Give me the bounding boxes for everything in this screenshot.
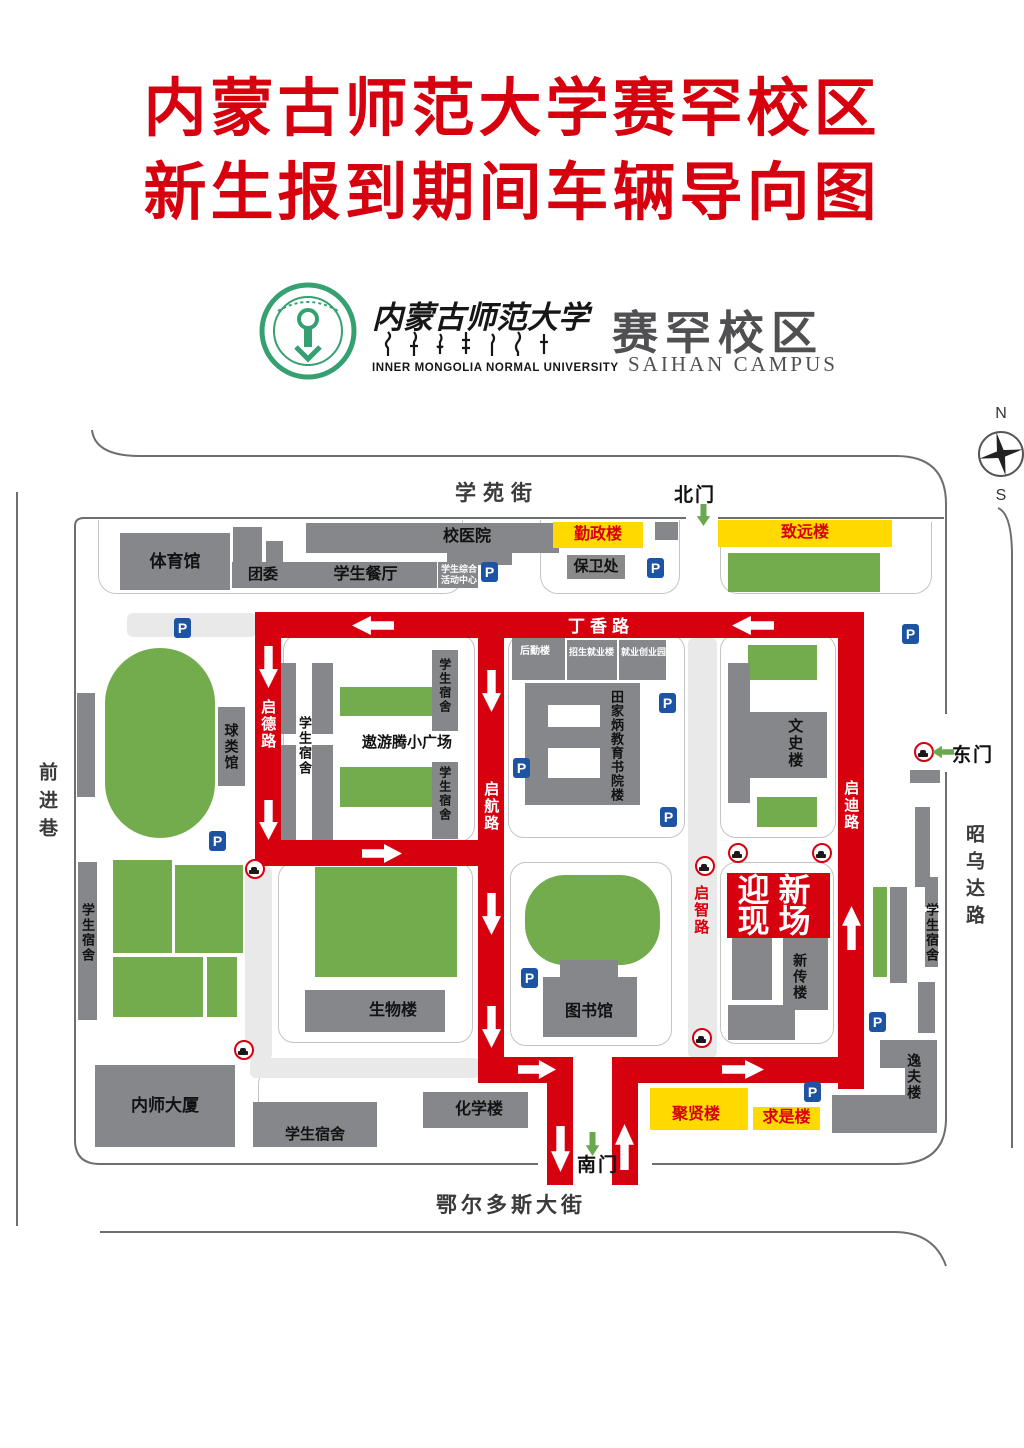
no-entry-icon <box>728 843 748 863</box>
building-yifu-label: 逸夫楼 <box>906 1053 922 1101</box>
lawn <box>175 865 243 953</box>
building-campus-hospital <box>306 523 559 553</box>
building-courtyard <box>548 705 600 727</box>
building-neishi-tower: 内师大厦 <box>95 1065 235 1147</box>
lawn <box>315 867 457 977</box>
building-xinchuan-wing <box>728 1005 795 1040</box>
parking-icon: P <box>869 1012 886 1032</box>
svg-text:N: N <box>995 405 1007 422</box>
building-dormitory-west-label: 学生宿舍 <box>79 903 94 963</box>
svg-text:S: S <box>996 487 1007 504</box>
lawn <box>873 887 887 977</box>
building-wenshi-label: 文史楼 <box>786 718 803 769</box>
building-block <box>233 527 262 563</box>
building-dormitory-east-label: 学生宿舍 <box>923 903 938 963</box>
lawn <box>113 957 203 1017</box>
street-south-label: 鄂尔多斯大街 <box>436 1189 586 1219</box>
parking-icon: P <box>481 562 498 582</box>
building-campus-hospital-label: 校医院 <box>443 528 491 546</box>
building-zhiyuan: 致远楼 <box>718 520 892 547</box>
building-security-office: 保卫处 <box>567 555 625 579</box>
building-xinchuan-wing <box>732 938 772 1000</box>
gate-north-label: 北门 <box>674 480 716 507</box>
building-courtyard <box>548 748 600 778</box>
building-block <box>77 693 95 797</box>
building-juxian: 聚贤楼 <box>650 1088 748 1130</box>
lawn <box>340 687 432 716</box>
building-qinzheng: 勤政楼 <box>553 522 643 548</box>
parking-icon: P <box>647 558 664 578</box>
street-east-label: 昭乌达路 <box>960 824 987 932</box>
building-block <box>918 982 935 1033</box>
parking-icon: P <box>804 1082 821 1102</box>
stadium-field <box>105 648 215 838</box>
road-qizhi <box>688 638 717 1058</box>
compass-icon: N S <box>968 402 1024 504</box>
parking-icon: P <box>513 758 530 778</box>
path-southwest-vertical <box>245 866 272 1060</box>
plaza-label: 遨游腾小广场 <box>362 734 452 751</box>
lawn <box>207 957 237 1017</box>
building-dorm-slab <box>312 745 333 843</box>
street-west-label: 前进巷 <box>33 762 60 846</box>
road-dingxiang-label: 丁香路 <box>568 617 634 637</box>
building-dorm-slab <box>312 663 333 734</box>
parking-icon: P <box>660 807 677 827</box>
building-youth-league: 团委 <box>232 562 294 588</box>
no-entry-icon <box>695 856 715 876</box>
parking-icon: P <box>209 831 226 851</box>
road-qizhi-label: 启智路 <box>692 885 709 936</box>
building-tianjiabing-label: 田家炳教育书院楼 <box>608 690 623 802</box>
lawn <box>757 797 817 827</box>
welcome-site-banner: 迎新 现场 <box>727 873 830 938</box>
building-block <box>266 541 283 563</box>
no-entry-icon <box>234 1040 254 1060</box>
no-entry-icon <box>692 1028 712 1048</box>
building-library: 图书馆 <box>543 977 637 1037</box>
lawn <box>340 767 432 807</box>
street-north-label: 学苑街 <box>455 477 539 507</box>
dorm-label: 学生宿舍 <box>437 766 451 822</box>
path-dingxiang-west <box>127 613 257 637</box>
building-student-canteen: 学生餐厅 <box>294 562 437 588</box>
library-lawn <box>525 875 660 965</box>
road-qide-label: 启德路 <box>259 699 276 750</box>
building-qiushi: 求是楼 <box>753 1107 820 1130</box>
no-entry-icon <box>245 859 265 879</box>
building-biology: 生物楼 <box>305 990 445 1032</box>
building-dormitory-south: 学生宿舍 <box>253 1102 377 1147</box>
building-block <box>890 887 907 983</box>
parking-icon: P <box>174 618 191 638</box>
gate-east-label: 东门 <box>952 740 994 767</box>
building-career-park: 就业创业园 <box>619 640 666 680</box>
building-block <box>915 807 930 887</box>
building-admissions: 招生就业楼 <box>567 640 617 680</box>
building-gymnasium: 体育馆 <box>120 533 230 590</box>
building-xinchuan-label: 新传楼 <box>792 953 808 1001</box>
building-logistics: 后勤楼 <box>512 638 565 680</box>
building-student-activity-center: 学生综合 活动中心 <box>438 562 478 588</box>
poster: 内蒙古师范大学赛罕校区 新生报到期间车辆导向图 内蒙古师范大学 INNER MO… <box>0 0 1024 1448</box>
path-southwest-horizontal <box>250 1058 480 1078</box>
dorm-quad-label: 学生宿舍 <box>296 715 311 777</box>
parking-icon: P <box>659 693 676 713</box>
no-entry-icon <box>914 742 934 762</box>
lawn <box>748 645 817 680</box>
parking-icon: P <box>521 968 538 988</box>
building-library-annex <box>560 960 618 977</box>
lawn <box>728 553 880 592</box>
building-ball-games-hall: 球类馆 <box>218 707 245 786</box>
road-qidi-label: 启迪路 <box>842 780 859 831</box>
road-qihang-label: 启航路 <box>482 781 499 832</box>
building-wenshi-wing <box>728 663 750 803</box>
building-courtyard <box>880 1068 905 1095</box>
route-qidi-road <box>838 612 864 1089</box>
building-block <box>655 522 678 540</box>
building-chemistry: 化学楼 <box>423 1092 528 1128</box>
no-entry-icon <box>812 843 832 863</box>
gate-south-label: 南门 <box>577 1150 619 1177</box>
lawn <box>113 860 172 953</box>
parking-icon: P <box>902 624 919 644</box>
building-block <box>910 770 940 783</box>
dorm-label: 学生宿舍 <box>437 658 451 714</box>
